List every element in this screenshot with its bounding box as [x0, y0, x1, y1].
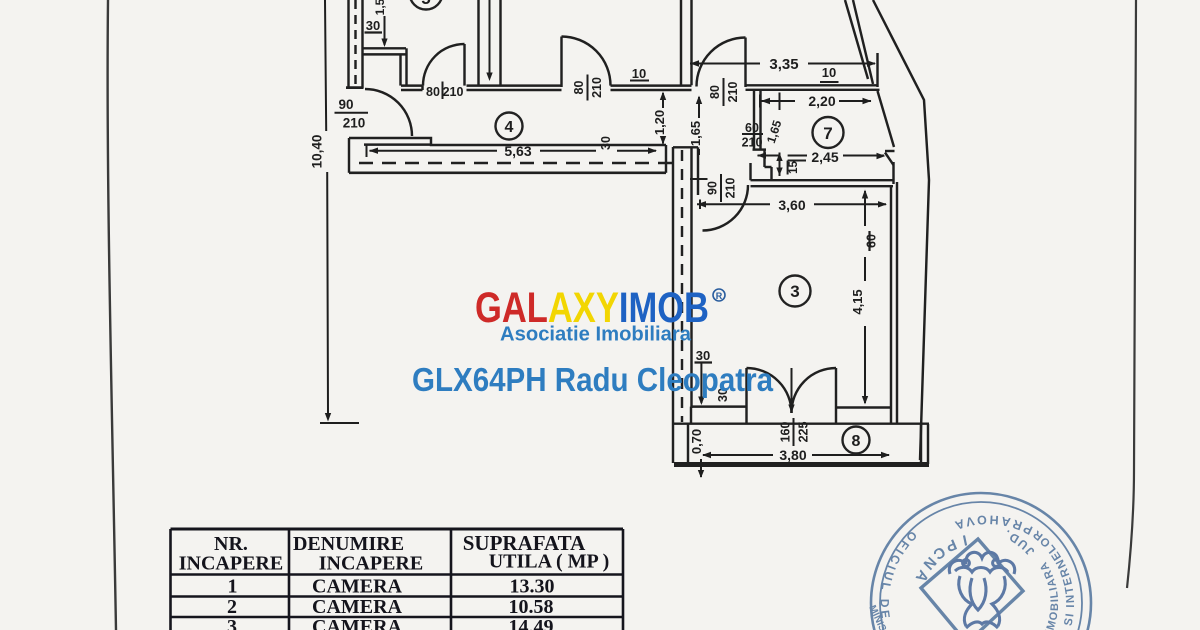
svg-text:14.49: 14.49 — [509, 616, 554, 630]
svg-text:10.58: 10.58 — [509, 596, 554, 618]
svg-text:90: 90 — [338, 97, 353, 112]
svg-text:210: 210 — [590, 77, 604, 98]
svg-text:INCAPERE: INCAPERE — [319, 553, 423, 575]
svg-text:3,60: 3,60 — [778, 197, 805, 213]
svg-text:3,35: 3,35 — [769, 56, 798, 73]
svg-text:8: 8 — [852, 433, 861, 450]
svg-text:160: 160 — [779, 422, 793, 443]
svg-text:60: 60 — [745, 121, 759, 135]
svg-text:15: 15 — [788, 161, 800, 174]
svg-text:30: 30 — [366, 18, 380, 33]
svg-text:210: 210 — [726, 82, 740, 103]
svg-text:CAMERA: CAMERA — [312, 596, 403, 618]
svg-text:GLX64PH Radu Cleopatra: GLX64PH Radu Cleopatra — [412, 361, 774, 398]
svg-text:210: 210 — [443, 85, 464, 99]
svg-text:4: 4 — [505, 119, 514, 136]
svg-text:13.30: 13.30 — [510, 576, 555, 598]
svg-text:CAMERA: CAMERA — [312, 576, 403, 598]
svg-text:3: 3 — [227, 616, 237, 630]
svg-text:5,63: 5,63 — [504, 143, 531, 159]
svg-text:UTILA ( MP ): UTILA ( MP ) — [489, 551, 610, 573]
svg-text:210: 210 — [724, 178, 738, 199]
svg-text:1,5: 1,5 — [373, 0, 387, 15]
svg-text:7: 7 — [823, 124, 832, 143]
svg-text:3,80: 3,80 — [779, 447, 806, 463]
svg-text:80: 80 — [708, 85, 722, 99]
svg-text:90: 90 — [706, 181, 720, 195]
svg-text:4,15: 4,15 — [850, 289, 865, 314]
svg-text:3: 3 — [790, 282, 799, 301]
svg-text:2,20: 2,20 — [808, 93, 835, 109]
svg-text:210: 210 — [742, 136, 763, 150]
svg-text:30: 30 — [599, 136, 613, 150]
svg-text:80: 80 — [572, 81, 586, 95]
svg-text:60: 60 — [865, 234, 879, 248]
svg-text:5: 5 — [421, 0, 430, 8]
svg-text:INCAPERE: INCAPERE — [179, 553, 283, 575]
svg-text:10: 10 — [632, 66, 646, 81]
svg-text:0,70: 0,70 — [689, 429, 704, 454]
svg-text:Asociatie Imobiliara: Asociatie Imobiliara — [500, 324, 692, 346]
svg-text:10: 10 — [822, 65, 836, 80]
svg-text:1,20: 1,20 — [652, 110, 667, 135]
svg-text:2: 2 — [227, 596, 237, 618]
svg-text:CAMERA: CAMERA — [312, 616, 403, 630]
svg-text:210: 210 — [343, 116, 366, 131]
svg-text:80: 80 — [426, 85, 440, 99]
svg-text:1,65: 1,65 — [688, 121, 703, 146]
svg-text:1: 1 — [228, 576, 238, 598]
svg-text:10,40: 10,40 — [310, 135, 325, 169]
svg-text:225: 225 — [797, 422, 811, 443]
svg-text:R: R — [716, 291, 723, 301]
svg-text:2,45: 2,45 — [811, 149, 838, 165]
